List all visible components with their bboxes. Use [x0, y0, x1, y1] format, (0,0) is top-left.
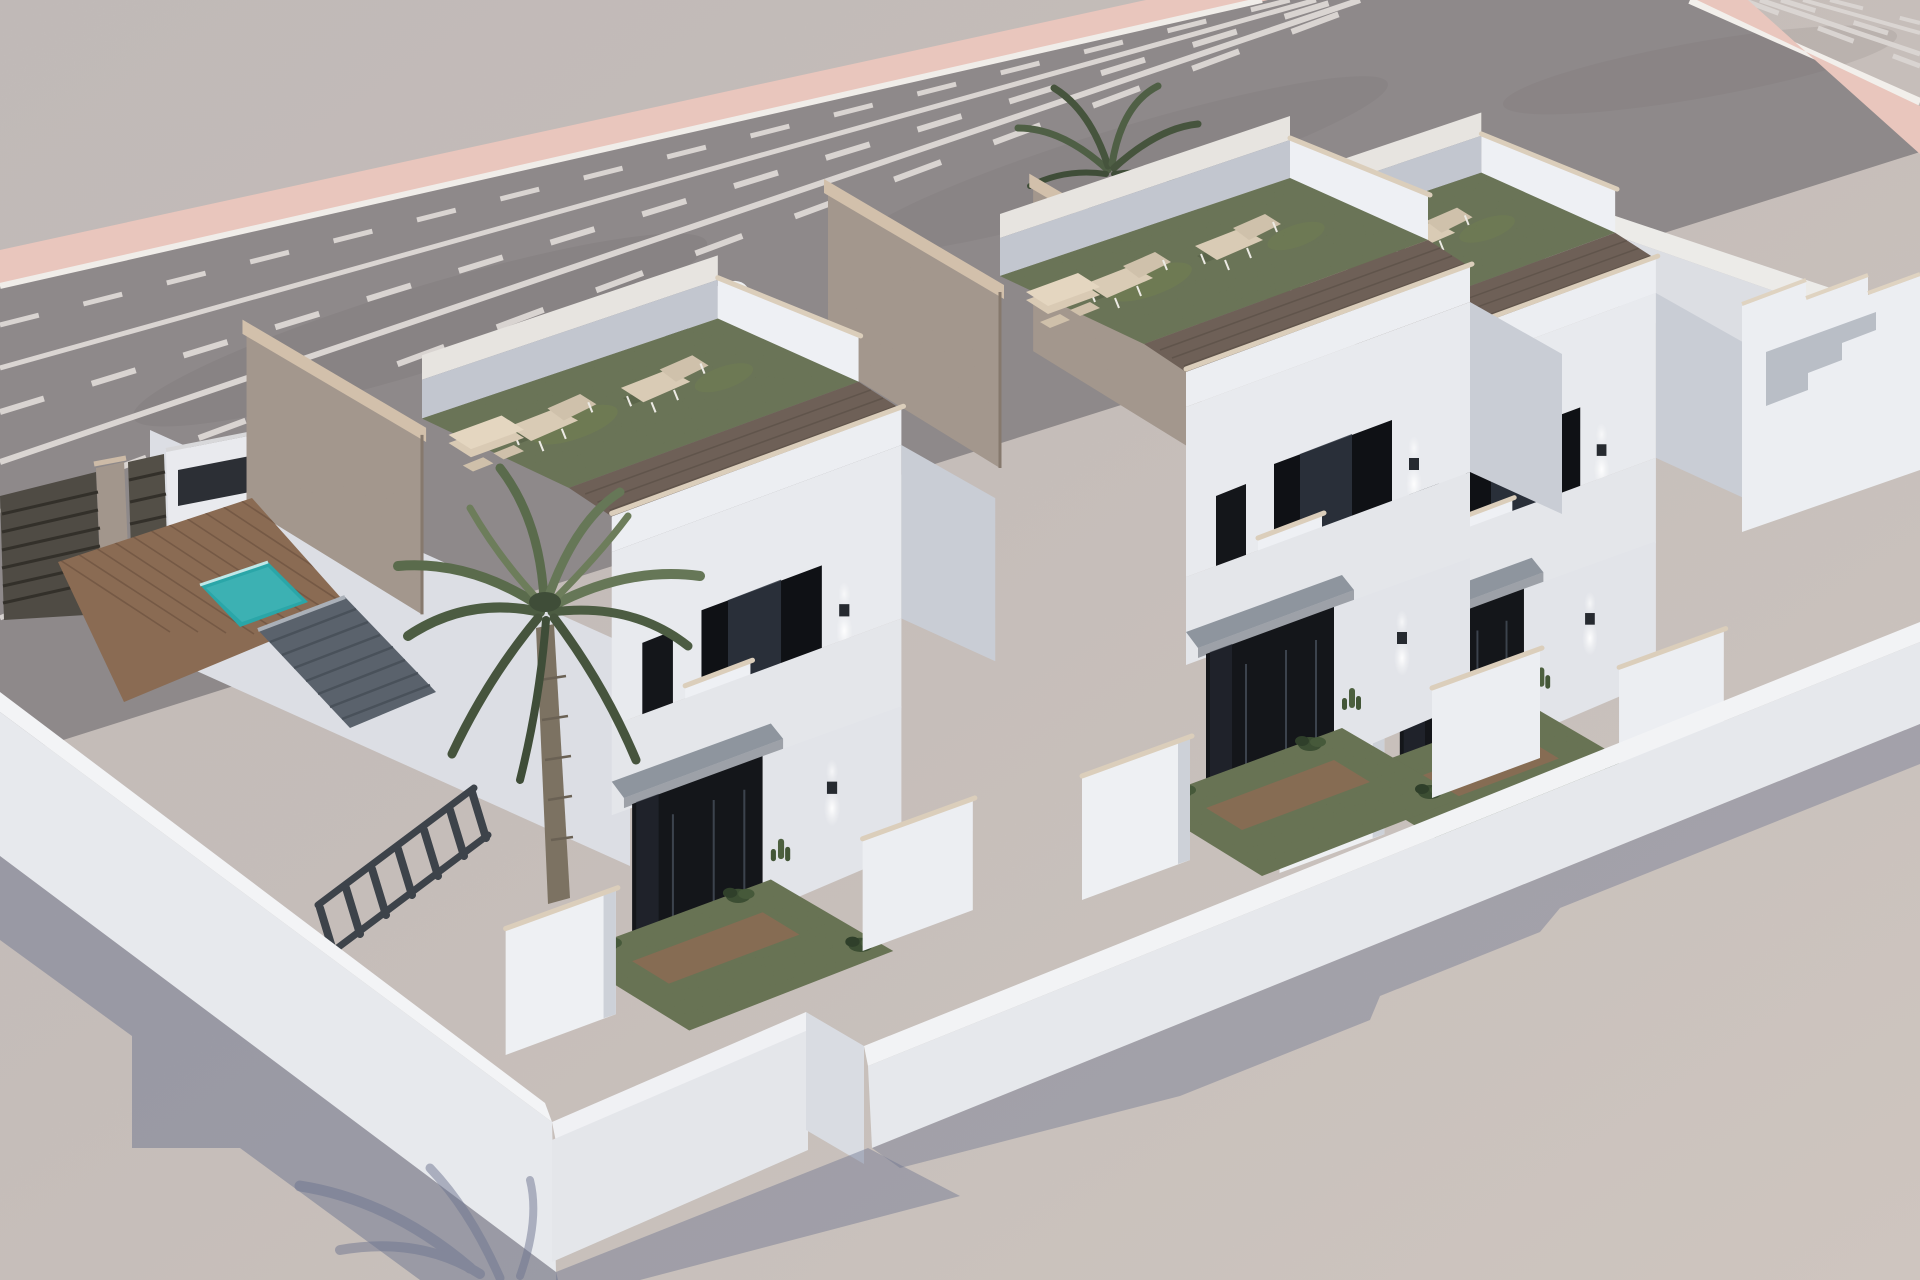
- render-canvas: [0, 0, 1920, 1280]
